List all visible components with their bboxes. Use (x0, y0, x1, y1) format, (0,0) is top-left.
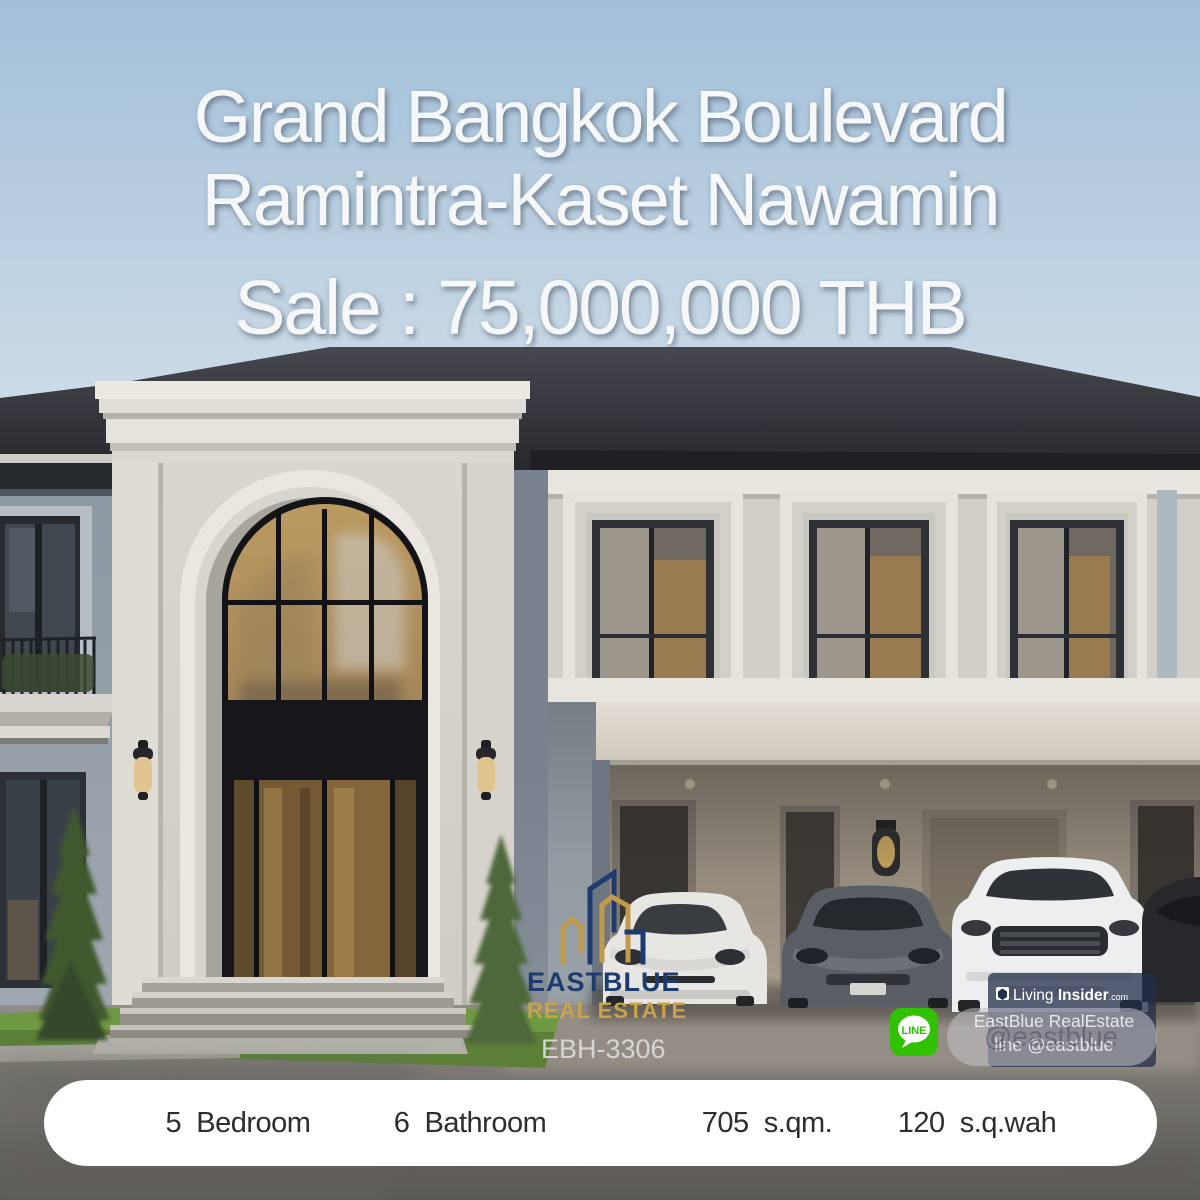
svg-text:EBH-3306: EBH-3306 (541, 1034, 666, 1064)
svg-text:REAL ESTATE: REAL ESTATE (527, 998, 687, 1023)
svg-text:EASTBLUE: EASTBLUE (527, 967, 681, 997)
svg-text:@eastblue: @eastblue (984, 1021, 1118, 1052)
svg-text:LINE: LINE (901, 1025, 926, 1037)
